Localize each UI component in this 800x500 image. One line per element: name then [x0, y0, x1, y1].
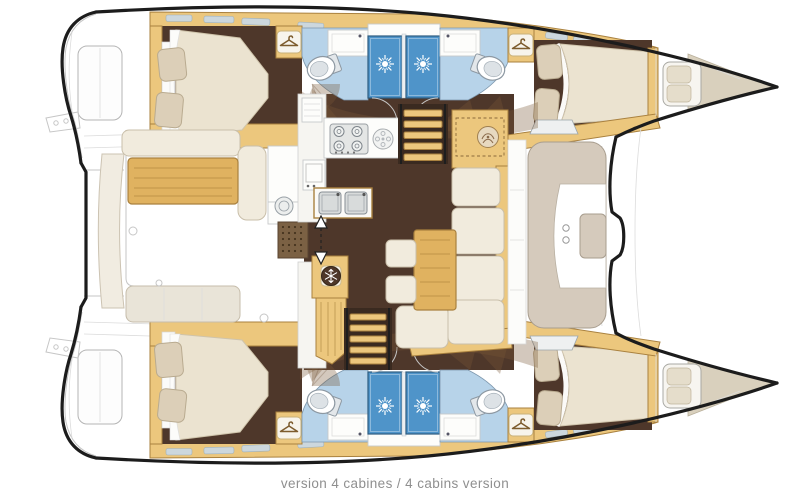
transom-bench — [98, 154, 124, 308]
cockpit-sink — [275, 197, 293, 215]
settee-cushion — [452, 256, 504, 302]
wetbar-unit — [268, 146, 300, 202]
round-burner-icon — [373, 129, 393, 149]
hanger-icon — [509, 414, 533, 436]
stove-icon — [330, 124, 368, 154]
stairs-starboard — [344, 308, 392, 370]
stairs-port — [398, 104, 448, 164]
stool — [386, 276, 416, 303]
caption: version 4 cabines / 4 cabins version — [281, 476, 509, 491]
settee-cushion — [452, 168, 500, 206]
cockpit-bench — [126, 286, 240, 322]
aft-cockpit — [84, 130, 308, 322]
floorplan-page: version 4 cabines / 4 cabins version — [0, 0, 800, 500]
hanger-icon — [277, 417, 301, 439]
cockpit-bench — [238, 146, 266, 220]
lounge-backrest — [580, 214, 606, 258]
settee-cushion — [396, 306, 448, 348]
refrigerator — [312, 256, 348, 364]
cockpit-bench — [122, 130, 240, 156]
snowflake-icon — [322, 267, 341, 286]
oven — [303, 160, 325, 190]
settee-cushion — [452, 208, 504, 254]
cockpit-table — [128, 158, 238, 204]
hanger-icon — [509, 34, 533, 56]
dinette-table — [414, 230, 456, 310]
double-sink-icon — [314, 188, 372, 218]
forward-window-band — [508, 140, 526, 344]
stool — [386, 240, 416, 267]
teak-mat — [278, 222, 308, 258]
catamaran-floorplan: version 4 cabines / 4 cabins version — [0, 0, 800, 500]
dial-icon — [478, 127, 499, 148]
hanger-icon — [277, 31, 301, 53]
